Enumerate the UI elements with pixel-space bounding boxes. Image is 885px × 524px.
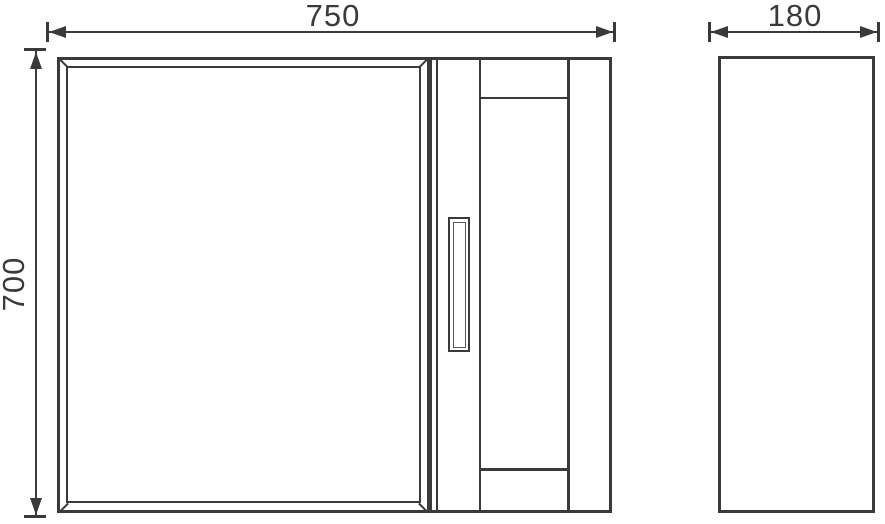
arrow-left-icon: [711, 26, 728, 38]
technical-drawing: 750 700: [0, 0, 885, 524]
dimension-tick-right: [877, 22, 880, 42]
dimension-label-side-depth: 180: [735, 0, 855, 32]
side-panel-outline: [718, 56, 875, 513]
arrow-right-icon: [860, 26, 877, 38]
side-view: 180: [0, 0, 885, 524]
